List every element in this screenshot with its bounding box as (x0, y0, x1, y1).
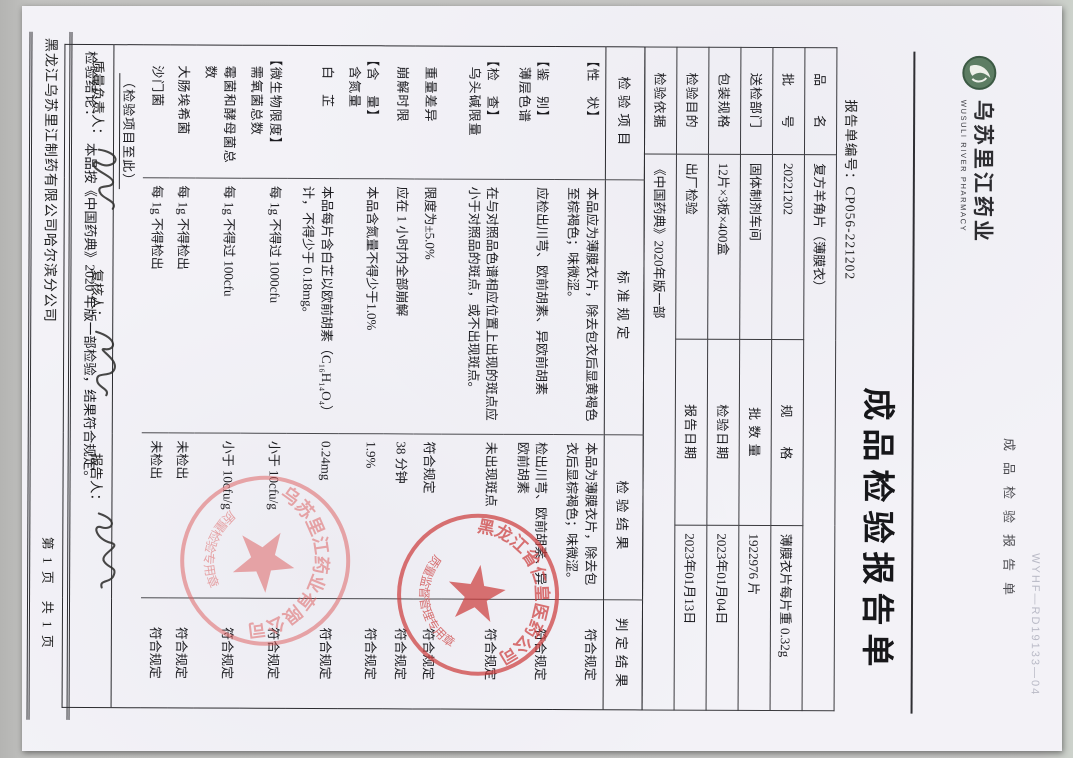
field-batch-value: 20221202 (772, 155, 805, 340)
field-dept-value: 固体制剂车间 (740, 154, 773, 339)
table-row: 检验目的 出厂检验 报告日期 2023年01月13日 (674, 47, 709, 710)
standard-cell: 每 1g 不得检出 (168, 178, 196, 433)
rotated-document: WYHF—RD19133—04 成品检验报告单 乌苏里江药业 WUSULI RI… (22, 6, 1062, 751)
company-logo: 乌苏里江药业 WUSULI RIVER PHARMACY (959, 54, 1000, 244)
field-test-date-value: 2023年01月04日 (706, 525, 739, 710)
header-info-table: 品 名 复方羊角片（薄膜衣） 批 号 20221202 规 格 薄膜衣片每片重 … (642, 46, 838, 711)
standard-cell: 本品含氮量不得少于1.0% (339, 179, 386, 434)
col-header-item: 检验项目 (605, 47, 645, 180)
quality-manager-signature (86, 142, 129, 218)
page-footer: 黑龙江乌苏里江制药有限公司哈尔滨分公司 第 1 页 共 1 页 (27, 32, 73, 720)
item-name: 重量差异 (421, 66, 440, 171)
footer-page-info: 第 1 页 共 1 页 (39, 537, 58, 650)
item-group: 【检 查】 (483, 54, 502, 172)
field-qty-label: 批 数 量 (739, 340, 772, 525)
field-pack-label: 包装规格 (708, 47, 740, 154)
field-spec-value: 薄膜衣片每片重 0.32g (770, 525, 803, 710)
field-name-value: 复方羊角片（薄膜衣） (802, 155, 836, 711)
col-header-standard: 标准规定 (604, 180, 644, 435)
table-row: 批 号 20221202 规 格 薄膜衣片每片重 0.32g (770, 48, 805, 711)
field-report-date-value: 2023年01月13日 (674, 525, 707, 710)
standard-cell: 每 1g 不得检出 (142, 178, 170, 433)
item-name: 大肠埃希菌 (173, 65, 192, 170)
field-purpose-value: 出厂检验 (676, 154, 709, 339)
item-name: 崩解时限 (393, 66, 412, 171)
logo-name-cn: 乌苏里江药业 (969, 100, 1000, 244)
field-name-label: 品 名 (804, 48, 836, 155)
stamp-inner-text: 质量监督管理专用章 (409, 551, 459, 654)
regulator-seal-stamp: 黑龙江省仁皇医药公司 质量监督管理专用章 (379, 495, 578, 694)
item-name: 需氧菌总数 (246, 66, 265, 171)
signature-block: 质量负责人： 复核人： 报告人： (87, 60, 128, 708)
item-group: 【鉴 别】 (533, 54, 552, 172)
report-number-value: CP056-221202 (842, 186, 857, 280)
standard-cell: 每 1g 不得过 100cfu (195, 178, 242, 433)
reviewer-label: 复核人： (88, 269, 108, 323)
table-row: 检验依据 《中国药典》2020年版一部 (642, 47, 677, 710)
field-basis-value: 《中国药典》2020年版一部 (642, 154, 676, 710)
reporter-signature (85, 508, 128, 592)
logo-emblem-icon (960, 54, 998, 92)
field-basis-label: 检验依据 (644, 47, 676, 154)
judgment-cell: 符合规定 (337, 599, 383, 709)
letterhead-rule (911, 52, 916, 714)
report-number: 报告单编号：CP056-221202 (841, 99, 862, 280)
item-name: 薄层色谱 (514, 67, 533, 172)
result-cell: 未检出 (141, 433, 169, 598)
standard-cell: 每 1g 不得过 1000cfu (241, 178, 288, 433)
standard-cell: 应在 1 小时内全部崩解 (384, 179, 415, 434)
standard-cell: 限度为±5.0% (414, 179, 443, 434)
standard-cell: 本品每片含白芷以欧前胡素（C₁₆H₁₄O₄）计，不得少于 0.18mg。 (287, 178, 340, 433)
item-name: 乌头碱限量 (464, 67, 483, 172)
field-spec-label: 规 格 (771, 340, 804, 525)
field-dept-label: 送检部门 (740, 47, 772, 154)
field-pack-value: 12片×3板×400盒 (708, 154, 741, 339)
table-row: 包装规格 12片×3板×400盒 检验日期 2023年01月04日 (706, 47, 741, 710)
star-icon (447, 561, 511, 627)
item-name: 沙门菌 (147, 65, 166, 170)
stamp-inner-text: 质量检验专用章 (193, 504, 240, 593)
field-test-date-label: 检验日期 (707, 340, 740, 525)
field-qty-value: 1922976 片 (738, 525, 771, 710)
svg-text:质量检验专用章: 质量检验专用章 (193, 504, 240, 593)
standard-cell: 应检出川芎、欧前胡素、异欧前胡素 (504, 179, 555, 434)
quality-manager-label: 质量负责人： (89, 60, 109, 141)
item-name: 含氮量 (344, 66, 363, 171)
table-row: 品 名 复方羊角片（薄膜衣） (802, 48, 837, 711)
item-group: 【微生物限度】 (265, 53, 284, 171)
svg-text:质量监督管理专用章: 质量监督管理专用章 (409, 551, 459, 654)
item-group: 【性 状】 (582, 54, 601, 172)
table-row: 送检部门 固体制剂车间 批 数 量 1922976 片 (738, 47, 773, 710)
report-title: 成品检验报告单 (856, 387, 905, 674)
col-header-result: 检验结果 (604, 435, 644, 600)
doc-type-side-label: 成品检验报告单 (1000, 438, 1020, 606)
field-report-date-label: 报告日期 (675, 339, 708, 524)
standard-cell: 在与对照品色谱相应位置上出现的斑点应小于对照品的斑点，或不出现斑点。 (442, 179, 505, 434)
item-name: 白 芷 (317, 66, 336, 171)
item-group: 【含 量】 (363, 53, 382, 171)
star-icon (230, 524, 302, 598)
table-header-row: 检验项目 标准规定 检验结果 判定结果 (603, 47, 645, 710)
field-purpose-label: 检验目的 (676, 47, 708, 154)
report-number-label: 报告单编号： (843, 99, 858, 186)
col-header-judgment: 判定结果 (603, 600, 642, 710)
standard-cell: 本品应为薄膜衣片，除去包衣后显黄褐色至棕褐色；味微涩。 (554, 180, 605, 435)
logo-name-en: WUSULI RIVER PHARMACY (959, 100, 969, 244)
reporter-label: 报告人： (87, 453, 107, 507)
form-code: WYHF—RD19133—04 (1029, 553, 1042, 696)
field-batch-label: 批 号 (772, 48, 804, 155)
reviewer-signature (86, 324, 129, 398)
item-name: 霉菌和酵母菌总数 (200, 66, 238, 171)
scanned-paper: WYHF—RD19133—04 成品检验报告单 乌苏里江药业 WUSULI RI… (22, 6, 1062, 751)
footer-company-name: 黑龙江乌苏里江制药有限公司哈尔滨分公司 (40, 38, 61, 323)
